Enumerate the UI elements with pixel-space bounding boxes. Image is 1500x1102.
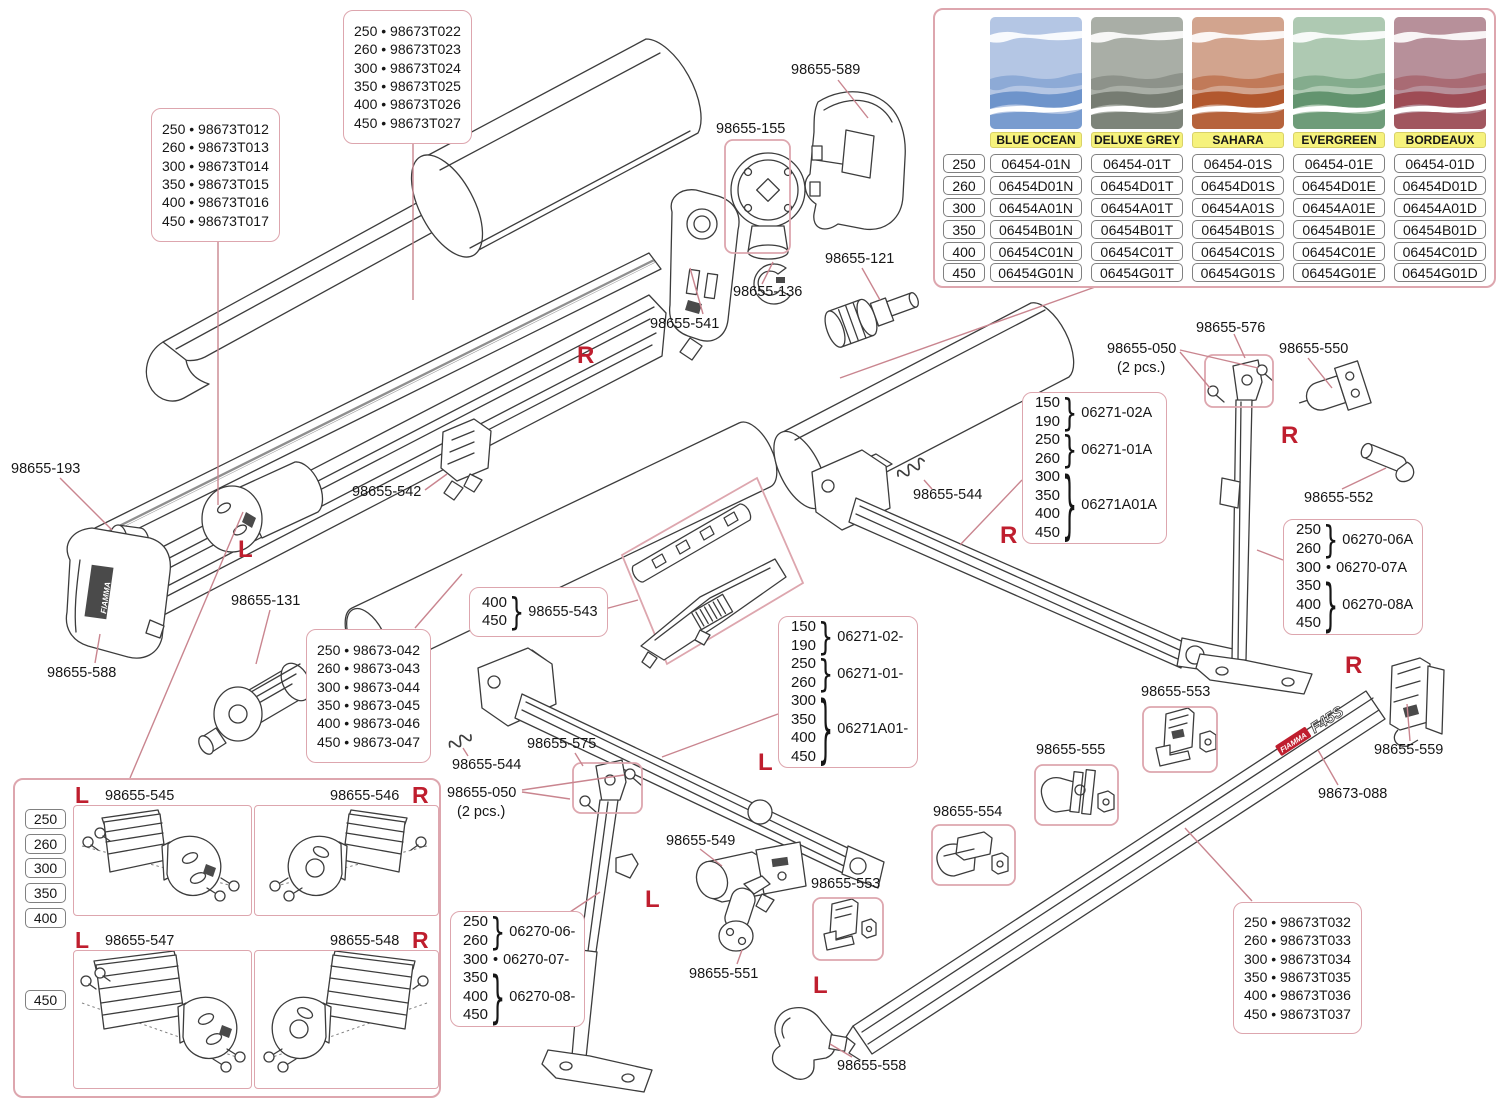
label-98655-050-right-qty: (2 pcs.): [1117, 360, 1165, 376]
arm-right-parts-box: 150190 }06271-02A 250260 }06271-01A 3003…: [1022, 392, 1167, 544]
leg-left-parts-box: 250260 }06270-06- 300 • 06270-07- 350400…: [450, 911, 585, 1027]
corner-548-figure: [254, 950, 439, 1089]
size-chip: 400: [25, 908, 66, 928]
color-name-badge: SAHARA: [1192, 132, 1284, 148]
swatch-bordeaux: [1394, 17, 1486, 129]
swatch-evergreen: [1293, 17, 1385, 129]
size-chip: 350: [943, 220, 985, 239]
size-chip: 300: [943, 198, 985, 217]
color-code-cell: 06454-01D: [1394, 154, 1486, 173]
color-name-badge: BLUE OCEAN: [990, 132, 1082, 148]
corner-546-figure: [254, 805, 439, 916]
label-98655-576: 98655-576: [1196, 320, 1265, 336]
color-code-cell: 06454-01S: [1192, 154, 1284, 173]
bracket-542-part: [441, 419, 491, 500]
label-98655-549: 98655-549: [666, 833, 735, 849]
leg-right-parts-box: 250260 }06270-06A 300 • 06270-07A 350400…: [1283, 519, 1423, 635]
color-code-cell: 06454D01T: [1091, 176, 1183, 195]
parts-list-roller-tube: 250 • 98673-042260 • 98673-043 300 • 986…: [306, 629, 431, 763]
color-code-cell: 06454B01S: [1192, 220, 1284, 239]
marker-left-545: L: [75, 784, 89, 807]
label-98655-050-right: 98655-050: [1107, 341, 1176, 357]
color-code-cell: 06454C01T: [1091, 242, 1183, 261]
marker-right-rail: R: [1345, 654, 1362, 678]
parts-list-lead-bar: 250 • 98673T032260 • 98673T033 300 • 986…: [1233, 902, 1362, 1034]
size-chip: 350: [25, 883, 66, 903]
marker-left-case: L: [238, 538, 253, 562]
label-98655-588: 98655-588: [47, 665, 116, 681]
bracket-550: [1293, 361, 1371, 424]
swatch-deluxe-grey: [1091, 17, 1183, 129]
marker-left-leg: L: [645, 888, 660, 912]
color-code-cell: 06454-01E: [1293, 154, 1385, 173]
color-code-cell: 06454B01D: [1394, 220, 1486, 239]
label-98655-136: 98655-136: [733, 284, 802, 300]
size-chip: 300: [25, 858, 66, 878]
color-code-cell: 06454A01T: [1091, 198, 1183, 217]
marker-left-arm: L: [758, 751, 773, 775]
clip-554: [937, 832, 1008, 876]
label-98673-088: 98673-088: [1318, 786, 1387, 802]
color-code-cell: 06454G01D: [1394, 263, 1486, 282]
color-code-cell: 06454G01S: [1192, 263, 1284, 282]
label-98655-121: 98655-121: [825, 251, 894, 267]
label-98655-547: 98655-547: [105, 933, 174, 949]
label-98655-548: 98655-548: [330, 933, 399, 949]
parts-list-fabric-top: 250 • 98673T022260 • 98673T023 300 • 986…: [343, 10, 472, 144]
clip-553-top: [1156, 708, 1216, 766]
label-98655-575: 98655-575: [527, 736, 596, 752]
color-code-cell: 06454A01E: [1293, 198, 1385, 217]
size-chip: 250: [25, 809, 66, 829]
marker-right-548: R: [412, 929, 429, 952]
label-98655-131: 98655-131: [231, 593, 300, 609]
swatch-sahara: [1192, 17, 1284, 129]
label-98655-193: 98655-193: [11, 461, 80, 477]
color-name-badge: DELUXE GREY: [1091, 132, 1183, 148]
color-code-cell: 06454B01N: [990, 220, 1082, 239]
screw-050-right-a: [1208, 386, 1224, 402]
spring-544-left: [448, 731, 473, 751]
size-chip: 250: [943, 154, 985, 173]
label-98655-544-right: 98655-544: [913, 487, 982, 503]
color-code-cell: 06454C01E: [1293, 242, 1385, 261]
color-code-cell: 06454D01S: [1192, 176, 1284, 195]
label-98655-545: 98655-545: [105, 788, 174, 804]
color-code-cell: 06454A01S: [1192, 198, 1284, 217]
label-98655-542: 98655-542: [352, 484, 421, 500]
arm-left-parts-box: 150190 }06271-02- 250260 }06271-01- 3003…: [778, 616, 918, 768]
clip-553-bottom: [824, 899, 876, 950]
swatch-blue-ocean: [990, 17, 1082, 129]
color-code-cell: 06454C01N: [990, 242, 1082, 261]
marker-left-rail: L: [813, 974, 828, 998]
label-98655-551: 98655-551: [689, 966, 758, 982]
size-chip: 450: [25, 990, 66, 1010]
label-98655-050-left: 98655-050: [447, 785, 516, 801]
color-name-badge: BORDEAUX: [1394, 132, 1486, 148]
bracket-541: [670, 190, 739, 360]
color-code-cell: 06454D01N: [990, 176, 1082, 195]
marker-right-arm: R: [1000, 524, 1017, 548]
label-98655-553-top: 98655-553: [1141, 684, 1210, 700]
roller-end-131: [196, 658, 317, 756]
label-98655-553-bottom: 98655-553: [811, 876, 880, 892]
label-98655-541: 98655-541: [650, 316, 719, 332]
awning-parts-diagram: FIAMMA F45S FIAMMA: [0, 0, 1500, 1102]
marker-right-leg: R: [1281, 424, 1298, 448]
size-chip: 400: [943, 242, 985, 261]
color-code-cell: 06454-01N: [990, 154, 1082, 173]
parts-list-case-profile: 250 • 98673T012260 • 98673T013 300 • 986…: [151, 108, 280, 242]
label-98655-558: 98655-558: [837, 1058, 906, 1074]
label-98655-050-left-qty: (2 pcs.): [457, 804, 505, 820]
color-code-cell: 06454C01D: [1394, 242, 1486, 261]
label-98655-550: 98655-550: [1279, 341, 1348, 357]
label-98655-544-left: 98655-544: [452, 757, 521, 773]
color-code-cell: 06454-01T: [1091, 154, 1183, 173]
color-code-cell: 06454G01T: [1091, 263, 1183, 282]
label-98655-546: 98655-546: [330, 788, 399, 804]
endcap-housing-588: FIAMMA: [66, 528, 170, 658]
label-98655-554: 98655-554: [933, 804, 1002, 820]
bracket-559: [1390, 658, 1444, 746]
color-code-cell: 06454G01N: [990, 263, 1082, 282]
color-code-cell: 06454B01E: [1293, 220, 1385, 239]
screw-050-left-a: [580, 796, 596, 812]
color-code-cell: 06454A01D: [1394, 198, 1486, 217]
marker-right-546: R: [412, 784, 429, 807]
color-code-cell: 06454G01E: [1293, 263, 1385, 282]
color-code-cell: 06454C01S: [1192, 242, 1284, 261]
cover-cap-589: [805, 92, 905, 230]
color-name-badge: EVERGREEN: [1293, 132, 1385, 148]
size-chip: 260: [25, 834, 66, 854]
wall-bracket-558: [773, 1008, 848, 1080]
clip-555: [1041, 770, 1114, 815]
size-chip: 450: [943, 263, 985, 282]
label-98655-589: 98655-589: [791, 62, 860, 78]
color-code-cell: 06454D01E: [1293, 176, 1385, 195]
label-98655-552: 98655-552: [1304, 490, 1373, 506]
color-code-cell: 06454D01D: [1394, 176, 1486, 195]
corner-545-figure: [73, 805, 252, 916]
holddown-parts-box: 400 450 } 98655-543: [469, 587, 608, 637]
label-98655-559: 98655-559: [1374, 742, 1443, 758]
color-code-cell: 06454A01N: [990, 198, 1082, 217]
corner-547-figure: [73, 950, 252, 1089]
color-code-cell: 06454B01T: [1091, 220, 1183, 239]
knob-121-part: [821, 281, 924, 350]
motor-155: [731, 153, 805, 259]
corner-caps-panel: L 98655-545 98655-546 R 250 260 300 350 …: [13, 778, 441, 1098]
size-chip: 260: [943, 176, 985, 195]
label-98655-155: 98655-155: [716, 121, 785, 137]
fabric-color-table: BLUE OCEAN DELUXE GREY SAHARA EVERGREEN …: [933, 8, 1496, 288]
marker-right-case: R: [577, 344, 594, 368]
marker-left-547: L: [75, 929, 89, 952]
label-98655-555: 98655-555: [1036, 742, 1105, 758]
